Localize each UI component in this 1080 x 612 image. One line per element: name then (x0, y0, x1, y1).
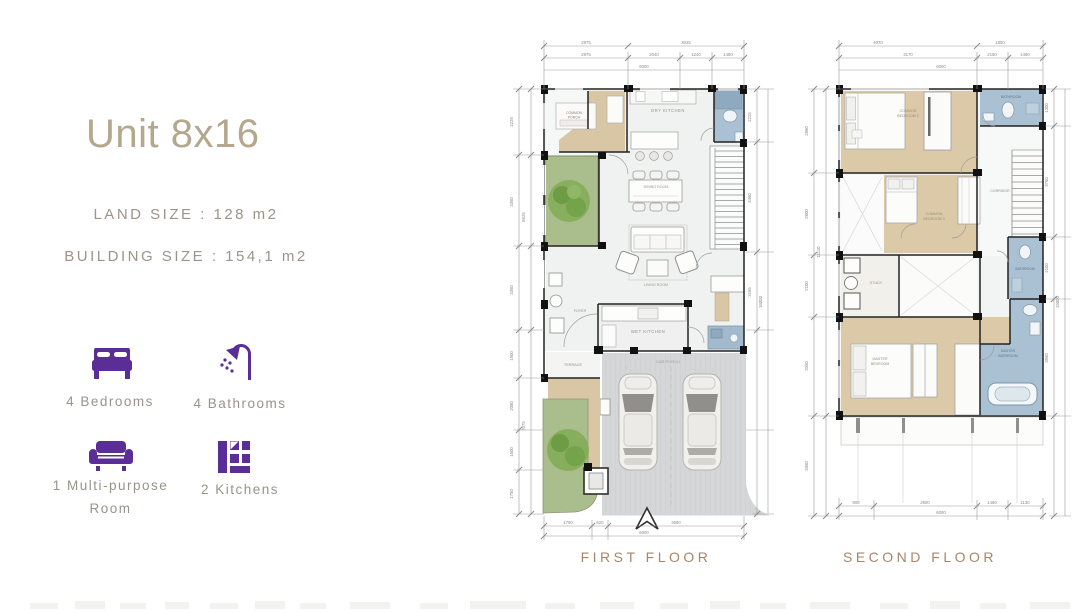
svg-text:BATHROOM: BATHROOM (1015, 267, 1035, 271)
svg-text:2225: 2225 (747, 112, 752, 122)
svg-text:6000: 6000 (936, 510, 946, 515)
svg-text:FOYER: FOYER (574, 309, 587, 313)
svg-text:PORCH: PORCH (568, 116, 581, 120)
svg-text:11110: 11110 (816, 246, 821, 258)
svg-text:2225: 2225 (509, 117, 514, 127)
svg-text:COMMON: COMMON (926, 212, 943, 216)
svg-text:2975: 2975 (581, 40, 591, 45)
svg-text:2100: 2100 (804, 281, 809, 291)
svg-text:2150: 2150 (987, 52, 997, 57)
svg-text:CAR PORCH: CAR PORCH (656, 359, 680, 364)
svg-text:3350: 3350 (804, 361, 809, 371)
svg-text:900: 900 (852, 500, 860, 505)
svg-text:620: 620 (596, 520, 604, 525)
svg-text:BEDROOM 2: BEDROOM 2 (897, 114, 919, 118)
svg-text:6000: 6000 (639, 530, 649, 535)
svg-text:MASTER: MASTER (1001, 349, 1016, 353)
svg-text:3165: 3165 (747, 287, 752, 297)
svg-text:SECOND FLOOR: SECOND FLOOR (843, 549, 997, 565)
svg-text:BEDROOM 3: BEDROOM 3 (923, 217, 945, 221)
svg-text:2080: 2080 (509, 401, 514, 411)
svg-text:COMMON: COMMON (566, 111, 582, 115)
svg-text:1480: 1480 (1020, 52, 1030, 57)
svg-text:7075: 7075 (521, 421, 526, 431)
svg-text:MASTER: MASTER (873, 357, 888, 361)
svg-text:6000: 6000 (639, 64, 649, 69)
svg-text:1600: 1600 (509, 447, 514, 457)
svg-text:1900: 1900 (509, 351, 514, 361)
svg-text:3350: 3350 (509, 285, 514, 295)
svg-text:1850: 1850 (995, 40, 1005, 45)
svg-text:16000: 16000 (1055, 295, 1060, 308)
svg-text:2975: 2975 (581, 52, 591, 57)
svg-text:3350: 3350 (804, 461, 809, 471)
svg-text:3350: 3350 (509, 197, 514, 207)
svg-text:2100: 2100 (1044, 263, 1049, 273)
svg-text:4460: 4460 (747, 193, 752, 203)
svg-text:BEDROOM: BEDROOM (871, 362, 890, 366)
svg-text:6000: 6000 (936, 64, 946, 69)
svg-text:1300: 1300 (1044, 103, 1049, 113)
svg-text:1460: 1460 (987, 500, 997, 505)
svg-text:2040: 2040 (649, 52, 659, 57)
svg-text:1130: 1130 (1020, 500, 1030, 505)
svg-text:1480: 1480 (723, 52, 733, 57)
svg-text:1240: 1240 (691, 52, 701, 57)
svg-text:BATHROOM: BATHROOM (998, 354, 1018, 358)
svg-text:3025: 3025 (681, 40, 691, 45)
svg-text:CORRIDOR: CORRIDOR (990, 189, 1010, 193)
svg-text:2600: 2600 (920, 500, 930, 505)
svg-text:WET KITCHEN: WET KITCHEN (631, 329, 665, 334)
svg-text:16000: 16000 (758, 295, 763, 308)
svg-text:FIRST FLOOR: FIRST FLOOR (581, 549, 712, 565)
svg-text:4070: 4070 (873, 40, 883, 45)
svg-text:3170: 3170 (903, 52, 913, 57)
svg-text:3760: 3760 (1044, 177, 1049, 187)
svg-text:2800: 2800 (804, 209, 809, 219)
svg-text:LIVING ROOM: LIVING ROOM (644, 283, 668, 287)
svg-text:TERRACE: TERRACE (564, 363, 583, 367)
svg-text:DRY KITCHEN: DRY KITCHEN (651, 108, 685, 113)
svg-text:1790: 1790 (563, 520, 573, 525)
svg-text:DINING ROOM: DINING ROOM (644, 185, 669, 189)
svg-text:COMMON: COMMON (900, 109, 917, 113)
svg-text:8925: 8925 (521, 212, 526, 222)
svg-text:3590: 3590 (671, 520, 681, 525)
svg-text:STUDY: STUDY (870, 281, 883, 285)
svg-text:BATHROOM: BATHROOM (1001, 95, 1022, 99)
svg-text:1750: 1750 (509, 489, 514, 499)
svg-text:3960: 3960 (1044, 353, 1049, 363)
svg-text:2860: 2860 (804, 126, 809, 136)
